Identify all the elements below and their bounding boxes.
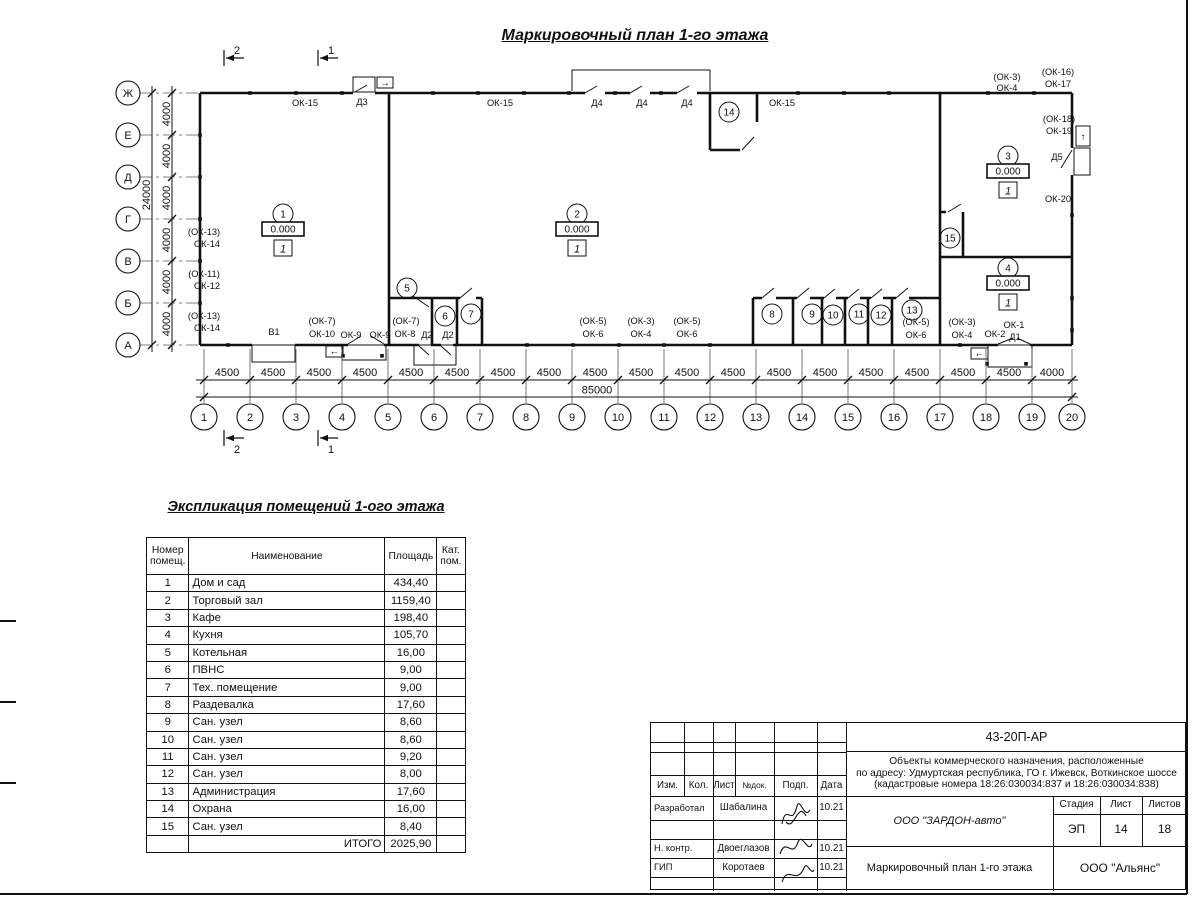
window-mark [525,343,529,347]
axis-label: 14 [796,412,808,424]
description-line: (кадастровые номера 18:26:030034:837 и 1… [874,779,1159,791]
room-area-cell: 9,00 [385,679,437,696]
signature-icon [774,796,817,891]
floor-type: 1 [1005,186,1011,198]
table-total-row: ИТОГО 2025,90 [147,835,466,852]
person-date: 10.21 [817,839,846,858]
window-mark [198,301,202,305]
room-number: 13 [906,306,918,317]
dim-value: 4000 [1040,367,1064,379]
dim-value: 4000 [161,270,173,294]
dim-value: 4500 [721,367,745,379]
window-mark [958,343,962,347]
dim-total: 24000 [141,180,153,211]
axis-label: 6 [431,412,437,424]
left-axis-grid: ЖЕДГВБА40004000400040004000400024000 [116,81,199,357]
room-category-cell [437,592,465,609]
table-row: 15Сан. узел8,40 [147,818,466,835]
axis-label: 8 [523,412,529,424]
table-row: 6ПВНС9,00 [147,661,466,678]
tb-header-podp: Подп. [774,775,817,796]
wall-label: ОК-6 [677,329,698,339]
entrance-arrow-icon: ← [975,349,985,360]
room-area-cell: 16,00 [385,644,437,661]
window-mark [1024,362,1028,366]
elevation-value: 0.000 [995,279,1020,290]
tb-header-kol: Кол. [684,775,713,796]
room-number: 8 [769,310,775,321]
wall-label: ОК-6 [906,330,927,340]
room-category-cell [437,801,465,818]
room-number-circles: 56789101112131415 [397,102,960,326]
room-number-cell: 9 [147,714,189,731]
person-role: Разработал [652,796,714,820]
wall-label: Д1 [1009,332,1020,342]
window-mark [1070,296,1074,300]
porch [353,77,375,92]
wall-label: (ОК-3) [993,72,1020,82]
room-area-cell: 8,60 [385,714,437,731]
total-label: ИТОГО [189,835,385,852]
room-category-cell [437,783,465,800]
room-category-cell [437,644,465,661]
section-label: 1 [328,45,334,57]
wall-label: ОК-20 [1045,194,1071,204]
table-row: 12Сан. узел8,00 [147,766,466,783]
room-name-cell: Сан. узел [189,766,385,783]
edge-tick [0,620,16,622]
total-value: 2025,90 [385,835,437,852]
axis-label: Г [125,214,131,226]
wall-label: ОК-1 [1004,320,1025,330]
room-area-cell: 8,60 [385,731,437,748]
person-role: Н. контр. [652,839,714,858]
plan-walls [200,93,1072,345]
axis-label: 2 [247,412,253,424]
title-block: 43-20П-АР Объекты коммерческого назначен… [650,722,1186,890]
section-label: 2 [234,45,240,57]
window-mark [796,91,800,95]
axis-label: 9 [569,412,575,424]
dim-value: 4500 [445,367,469,379]
table-row: 5Котельная16,00 [147,644,466,661]
wall-label: Д4 [591,98,602,108]
wall-label: ОК-4 [631,329,652,339]
tb-line [651,752,846,753]
project-description: Объекты коммерческого назначения, распол… [846,751,1187,796]
dim-value: 4500 [583,367,607,379]
wall-label: ОК-4 [952,330,973,340]
floor-type: 1 [1005,298,1011,310]
person-name: Коротаев [713,858,774,877]
room-category-cell [437,627,465,644]
axis-label: 11 [658,412,669,424]
room-number: 12 [875,311,887,322]
window-mark [659,91,663,95]
room-number-cell: 14 [147,801,189,818]
person-name: Двоеглазов [713,839,774,858]
floor-plan: ЖЕДГВБА400040004000400040004000240001234… [0,0,1200,470]
elevation-value: 0.000 [995,167,1020,178]
room-number-cell: 13 [147,783,189,800]
window-mark [294,91,298,95]
wall-label: (ОК-7) [392,316,419,326]
section-label: 1 [328,444,334,456]
room-number-cell: 2 [147,592,189,609]
table-title: Экспликация помещений 1-ого этажа [156,499,456,515]
room-number-cell: 8 [147,696,189,713]
dim-value: 4500 [215,367,239,379]
wall-label: В1 [268,327,279,337]
axis-label: 19 [1026,412,1038,424]
entrance-arrow-icon: ← [330,347,340,358]
table-row: 7Тех. помещение9,00 [147,679,466,696]
tb-header-ndok: №док. [735,775,774,796]
wall-label: (ОК-3) [948,317,975,327]
elevation-value: 0.000 [270,225,295,236]
room-number-cell: 15 [147,818,189,835]
dim-value: 4500 [905,367,929,379]
axis-label: Ж [123,88,133,100]
room-name-cell: Кухня [189,627,385,644]
description-line: по адресу: Удмуртская республика, ГО г. … [856,768,1177,780]
person-role: ГИП [652,858,714,877]
room-number: 9 [809,310,815,321]
room-area-cell: 1159,40 [385,592,437,609]
window-mark [522,91,526,95]
room-name-cell: Сан. узел [189,748,385,765]
dim-value: 4000 [161,186,173,210]
room-number-cell: 7 [147,679,189,696]
window-mark [431,91,435,95]
person-name: Шабалина [713,796,774,820]
porch [414,345,456,365]
dim-value: 4500 [399,367,423,379]
wall-label: (ОК-18) [1043,114,1075,124]
window-mark [248,91,252,95]
tb-line [651,742,846,743]
room-area-cell: 16,00 [385,801,437,818]
dim-value: 4000 [161,144,173,168]
room-name-cell: Кафе [189,609,385,626]
room-area-cell: 434,40 [385,575,437,592]
axis-label: 13 [750,412,762,424]
axis-label: 12 [704,412,716,424]
dim-value: 4500 [537,367,561,379]
axis-label: 7 [477,412,483,424]
room-number: 2 [574,210,580,221]
col-header-area: Площадь [385,538,437,575]
room-number: 10 [827,311,839,322]
room-category-cell [437,609,465,626]
axis-label: 16 [888,412,900,424]
room-name-cell: Охрана [189,801,385,818]
porch [1074,148,1090,175]
room-name-cell: Сан. узел [189,818,385,835]
sheet-number: 14 [1100,814,1142,846]
room-area-cell: 9,00 [385,661,437,678]
axis-label: Е [124,130,131,142]
window-mark [708,343,712,347]
section-arrow-icon [320,55,328,61]
room-name-cell: Дом и сад [189,575,385,592]
axis-label: 20 [1066,412,1078,424]
window-mark [226,343,230,347]
wall-label: ОК-15 [292,98,318,108]
table-row: 2Торговый зал1159,40 [147,592,466,609]
window-mark [662,343,666,347]
entrance-arrow-icon: ↑ [1081,132,1086,143]
section-label: 2 [234,444,240,456]
wall-label: (ОК-13) [188,227,220,237]
wall-labels: ОК-15Д3ОК-15Д4Д4Д4ОК-15(ОК-3)ОК-4(ОК-16)… [188,67,1075,342]
window-mark [567,91,571,95]
window-mark [1070,328,1074,332]
dim-value: 4500 [491,367,515,379]
entrance-canopy [572,70,710,91]
dim-value: 4500 [859,367,883,379]
room-category-cell [437,748,465,765]
tb-header-izm: Изм. [651,775,684,796]
wall-label: (ОК-3) [627,316,654,326]
room-name-cell: Тех. помещение [189,679,385,696]
explication-table: Номер помещ. Наименование Площадь Кат. п… [146,537,466,853]
wall-label: ОК-2 [985,329,1006,339]
room-category-cell [437,575,465,592]
room-number-cell: 6 [147,661,189,678]
room-number: 11 [854,310,865,321]
room-category-cell [437,679,465,696]
room-area-cell: 17,60 [385,696,437,713]
room-name-cell: ПВНС [189,661,385,678]
frame-bottom-line [0,893,1187,895]
window-mark [842,91,846,95]
table-row: 3Кафе198,40 [147,609,466,626]
table-row: 11Сан. узел9,20 [147,748,466,765]
room-number: 1 [280,210,286,221]
wall-label: ОК-4 [997,83,1018,93]
window-mark [476,91,480,95]
axis-label: 3 [293,412,299,424]
wall-label: Д4 [681,98,692,108]
table-row: 8Раздевалка17,60 [147,696,466,713]
dim-value: 4500 [767,367,791,379]
wall-label: (ОК-5) [579,316,606,326]
dim-value: 4500 [997,367,1021,379]
wall-label: ОК-14 [194,239,220,249]
floor-type: 1 [574,244,580,256]
wall-label: ОК-9 [370,330,391,340]
dim-value: 4500 [675,367,699,379]
dim-value: 4500 [813,367,837,379]
wall-label: Д3 [356,97,367,107]
room-number-cell: 4 [147,627,189,644]
total-empty-cell [437,835,465,852]
window-mark [340,91,344,95]
axis-label: 15 [842,412,854,424]
description-line: Объекты коммерческого назначения, распол… [889,756,1144,768]
room-markers: 10.000120.000130.000140.0001 [262,146,1029,310]
stage-header: Стадия [1053,796,1100,814]
window-mark [198,259,202,263]
edge-tick [0,782,16,784]
wall-label: ОК-6 [583,329,604,339]
dim-value: 4500 [353,367,377,379]
drawing-title: Маркировочный план 1-го этажа [846,846,1053,891]
stage-value: ЭП [1053,814,1100,846]
wall-label: ОК-9 [341,330,362,340]
col-header-category: Кат. пом. [437,538,465,575]
col-header-number: Номер помещ. [147,538,189,575]
edge-tick [0,701,16,703]
sheet-count: 18 [1142,814,1187,846]
wall-label: ОК-14 [194,323,220,333]
room-name-cell: Сан. узел [189,731,385,748]
room-area-cell: 9,20 [385,748,437,765]
total-empty-cell [147,835,189,852]
wall-label: ОК-15 [769,98,795,108]
axis-label: А [124,340,132,352]
room-area-cell: 105,70 [385,627,437,644]
axis-label: 4 [339,412,345,424]
tb-header-list: Лист [713,775,735,796]
table-row: 4Кухня105,70 [147,627,466,644]
table-row: 1Дом и сад434,40 [147,575,466,592]
person-date: 10.21 [817,796,846,820]
dim-value: 4500 [951,367,975,379]
dim-total: 85000 [582,385,613,397]
tb-header-data: Дата [817,775,846,796]
window-mark [380,354,384,358]
dim-value: 4000 [161,312,173,336]
dim-value: 4000 [161,228,173,252]
entrance-arrow-icon: → [380,78,390,89]
room-number-cell: 10 [147,731,189,748]
room-number-cell: 12 [147,766,189,783]
dim-value: 4500 [629,367,653,379]
room-name-cell: Сан. узел [189,714,385,731]
axis-label: 18 [980,412,992,424]
bottom-axis-grid: 1234567891011121314151617181920450045004… [191,349,1085,430]
stage-header: Лист [1100,796,1142,814]
wall-label: ОК-15 [487,98,513,108]
room-area-cell: 8,40 [385,818,437,835]
table-header-row: Номер помещ. Наименование Площадь Кат. п… [147,538,466,575]
dim-value: 4500 [307,367,331,379]
room-number: 5 [404,284,410,295]
room-category-cell [437,818,465,835]
axis-label: В [124,256,131,268]
section-arrow-icon [226,435,234,441]
window-mark [571,343,575,347]
axis-label: Б [124,298,131,310]
stage-header: Листов [1142,796,1187,814]
wall-label: Д2 [421,330,432,340]
room-number: 7 [468,310,474,321]
window-mark [1032,91,1036,95]
room-area-cell: 8,00 [385,766,437,783]
wall-label: Д5 [1051,152,1062,162]
axis-label: 5 [385,412,391,424]
col-header-name: Наименование [189,538,385,575]
elevation-value: 0.000 [564,225,589,236]
window-mark [1070,213,1074,217]
person-date: 10.21 [817,858,846,877]
room-name-cell: Администрация [189,783,385,800]
dim-value: 4000 [161,102,173,126]
contractor-company: ООО "ЗАРДОН-авто" [846,796,1053,846]
window-mark [198,175,202,179]
floor-type: 1 [280,244,286,256]
table-row: 10Сан. узел8,60 [147,731,466,748]
wall-label: (ОК-13) [188,311,220,321]
axis-label: 17 [934,412,946,424]
table-row: 14Охрана16,00 [147,801,466,818]
wall-label: ОК-8 [395,329,416,339]
room-number-cell: 3 [147,609,189,626]
room-category-cell [437,661,465,678]
room-number-cell: 11 [147,748,189,765]
room-category-cell [437,766,465,783]
window-mark [986,91,990,95]
room-number: 15 [944,234,956,245]
wall-label: ОК-12 [194,281,220,291]
window-mark [198,217,202,221]
wall-label: (ОК-5) [673,316,700,326]
room-area-cell: 198,40 [385,609,437,626]
room-category-cell [437,714,465,731]
wall-label: (ОК-7) [308,316,335,326]
dim-value: 4500 [261,367,285,379]
room-area-cell: 17,60 [385,783,437,800]
wall-label: Д4 [636,98,647,108]
window-mark [613,91,617,95]
wall-lines [200,93,1072,345]
window-mark [198,133,202,137]
room-number-cell: 1 [147,575,189,592]
room-number: 14 [723,108,735,119]
room-number: 3 [1005,152,1011,163]
drawing-sheet: { "colors":{"ink":"#111111","paper":"#ff… [0,0,1200,900]
wall-label: (ОК-11) [188,269,220,279]
room-category-cell [437,696,465,713]
wall-label: Д2 [442,330,453,340]
table-row: 9Сан. узел8,60 [147,714,466,731]
porch [252,345,295,362]
room-name-cell: Раздевалка [189,696,385,713]
wall-label: (ОК-16) [1042,67,1074,77]
room-name-cell: Торговый зал [189,592,385,609]
room-name-cell: Котельная [189,644,385,661]
section-arrow-icon [226,55,234,61]
table-body: 1Дом и сад434,402Торговый зал1159,403Каф… [147,575,466,836]
axis-label: 10 [612,412,624,424]
design-firm: ООО "Альянс" [1053,846,1187,891]
axis-label: Д [124,172,132,184]
window-mark [887,91,891,95]
porch [342,345,386,360]
window-mark [617,343,621,347]
section-arrow-icon [320,435,328,441]
axis-label: 1 [201,412,207,424]
wall-label: ОК-10 [309,329,335,339]
room-category-cell [437,731,465,748]
doc-code: 43-20П-АР [846,723,1187,751]
wall-label: ОК-19 [1046,126,1072,136]
room-number: 4 [1005,264,1011,275]
table-row: 13Администрация17,60 [147,783,466,800]
room-number-cell: 5 [147,644,189,661]
